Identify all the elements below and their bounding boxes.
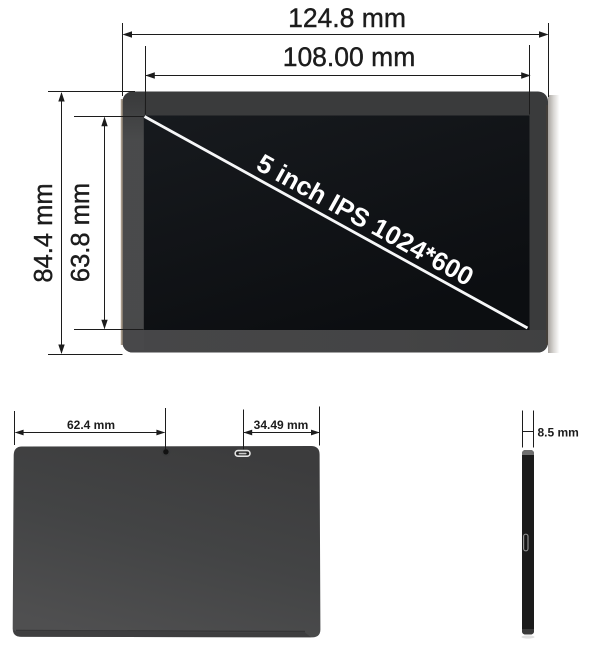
svg-text:8.5 mm: 8.5 mm [538,426,579,440]
svg-text:62.4 mm: 62.4 mm [67,418,115,432]
svg-text:34.49 mm: 34.49 mm [254,418,309,432]
svg-text:124.8 mm: 124.8 mm [288,3,406,33]
svg-text:108.00 mm: 108.00 mm [283,42,416,72]
svg-text:84.4 mm: 84.4 mm [30,183,58,282]
svg-text:63.8 mm: 63.8 mm [67,183,95,282]
